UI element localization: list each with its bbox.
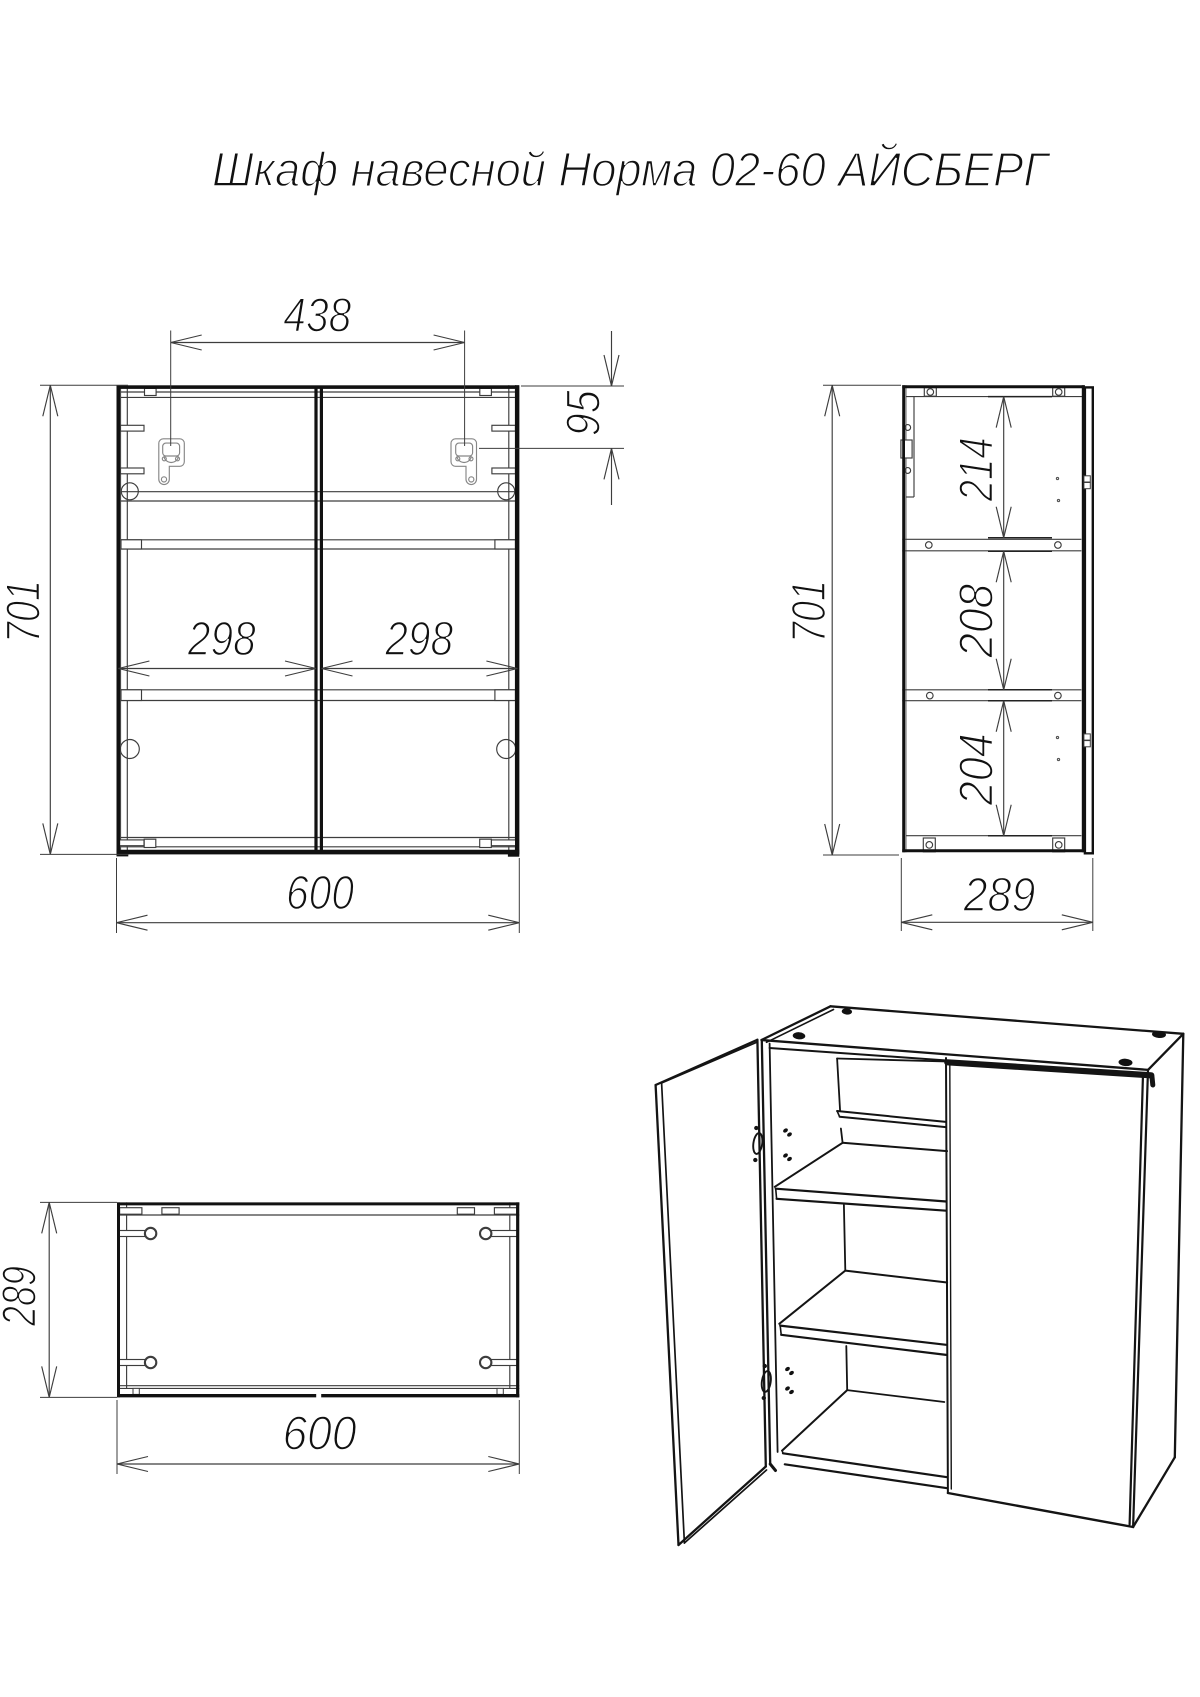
svg-text:289: 289 bbox=[0, 1266, 46, 1327]
svg-text:Шкаф навесной Норма 02-60 АЙСБ: Шкаф навесной Норма 02-60 АЙСБЕРГ bbox=[212, 142, 1051, 197]
svg-text:214: 214 bbox=[949, 437, 1003, 502]
svg-text:600: 600 bbox=[283, 1407, 357, 1461]
svg-text:289: 289 bbox=[963, 868, 1036, 922]
svg-text:701: 701 bbox=[782, 580, 836, 643]
svg-text:438: 438 bbox=[283, 289, 351, 343]
svg-text:701: 701 bbox=[0, 580, 50, 643]
svg-text:600: 600 bbox=[286, 866, 354, 920]
svg-text:95: 95 bbox=[556, 389, 610, 436]
svg-text:204: 204 bbox=[950, 733, 1004, 806]
svg-text:208: 208 bbox=[950, 584, 1004, 659]
svg-text:298: 298 bbox=[384, 612, 453, 666]
svg-text:298: 298 bbox=[187, 612, 256, 666]
